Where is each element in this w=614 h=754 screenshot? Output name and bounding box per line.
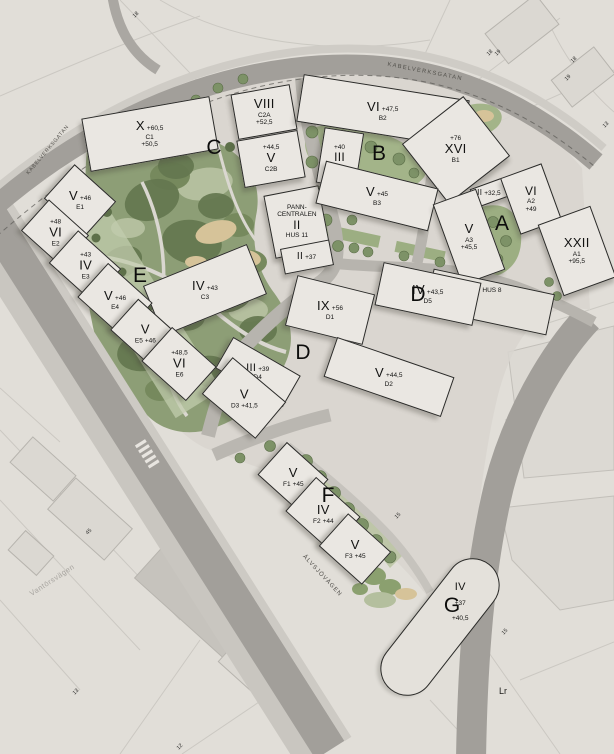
quarter-label-f: F bbox=[322, 484, 335, 508]
quarter-label-d-lower: D bbox=[295, 341, 310, 365]
building-b2-code: B2 bbox=[379, 115, 387, 122]
building-c2b-code: C2B bbox=[265, 166, 278, 173]
building-pann-annex-roman: II bbox=[297, 251, 303, 262]
building-a2-code: A2 bbox=[527, 198, 535, 205]
building-f3-roman: V bbox=[351, 538, 360, 553]
building-b2-height: +47,5 bbox=[382, 106, 398, 113]
building-d2-roman: V bbox=[375, 366, 384, 381]
building-c1-roman: X bbox=[136, 119, 145, 134]
quarter-label-d-upper: D bbox=[410, 283, 425, 307]
building-b3-height: +45 bbox=[377, 191, 388, 198]
building-b3-code: B3 bbox=[373, 200, 381, 207]
building-e1-height: +46 bbox=[80, 195, 91, 202]
building-e5-height: +46 bbox=[144, 337, 155, 344]
building-d1-code: D1 bbox=[326, 314, 334, 321]
building-e1-roman: V bbox=[69, 189, 78, 204]
building-f1-roman: V bbox=[289, 466, 298, 481]
building-c2a-height: +52,5 bbox=[256, 119, 272, 126]
building-e3-roman: IV bbox=[79, 259, 92, 274]
building-d3-code: D3 bbox=[231, 402, 239, 409]
building-e5-code: E5 bbox=[135, 337, 143, 344]
building-d1-height: +56 bbox=[332, 305, 343, 312]
building-a1-roman: XXII bbox=[564, 236, 590, 251]
quarter-label-a: A bbox=[495, 212, 509, 236]
building-d4-height: +39 bbox=[259, 366, 270, 373]
building-pann-code: HUS 11 bbox=[286, 232, 308, 239]
building-c1-note: +50,5 bbox=[142, 141, 158, 148]
building-d3-height: +41,5 bbox=[241, 402, 257, 409]
building-e4-height: +46 bbox=[115, 295, 126, 302]
building-d2-height: +44,5 bbox=[386, 372, 402, 379]
building-d1-roman: IX bbox=[317, 299, 330, 314]
building-c3-height: +43 bbox=[207, 285, 218, 292]
building-f1-height: +45 bbox=[292, 481, 303, 488]
building-a2-height: +49 bbox=[525, 206, 536, 213]
building-c2b-roman: V bbox=[266, 152, 275, 167]
building-a2-roman: VI bbox=[525, 185, 537, 198]
quarter-label-b: B bbox=[372, 142, 386, 166]
building-c1-height: +60,5 bbox=[147, 125, 163, 132]
building-f2-height: +44 bbox=[322, 518, 333, 525]
building-e6-roman: VI bbox=[173, 357, 186, 372]
building-pann-annex-height: +37 bbox=[306, 254, 317, 261]
building-d2-code: D2 bbox=[385, 381, 393, 388]
building-e2-roman: VI bbox=[49, 226, 62, 241]
building-e3-code: E3 bbox=[81, 273, 89, 280]
building-c3-roman: IV bbox=[192, 279, 205, 294]
building-pann-roman: II bbox=[293, 219, 300, 232]
building-d5-height: +43,5 bbox=[427, 289, 443, 296]
building-d3-roman: V bbox=[240, 387, 249, 402]
building-a1-height: +95,5 bbox=[569, 258, 585, 265]
building-hus8-code: HUS 8 bbox=[483, 287, 502, 294]
building-e4-roman: V bbox=[104, 289, 113, 304]
quarter-label-g: G bbox=[444, 594, 460, 618]
building-f1-code: F1 bbox=[283, 481, 291, 488]
building-b1-roman: XVI bbox=[445, 143, 467, 158]
street-label-lr-marker: Lr bbox=[499, 686, 507, 696]
building-e4-code: E4 bbox=[111, 304, 119, 311]
building-a3-height: +45,5 bbox=[461, 244, 477, 251]
quarter-label-e: E bbox=[133, 264, 147, 288]
building-c2a-roman: VIII bbox=[254, 97, 275, 112]
building-a3-roman: V bbox=[464, 222, 473, 237]
building-a4-height: +32,5 bbox=[484, 190, 500, 197]
building-g-roman: IV bbox=[455, 581, 466, 593]
building-f2-code: F2 bbox=[313, 518, 321, 525]
building-e1-code: E1 bbox=[76, 204, 84, 211]
building-b3-roman: V bbox=[366, 185, 375, 200]
building-e5-roman: V bbox=[141, 322, 150, 337]
building-f3-height: +45 bbox=[354, 553, 365, 560]
building-e6-code: E6 bbox=[175, 371, 183, 378]
site-plan: const data = JSON.parse(document.getElem… bbox=[0, 0, 614, 754]
building-b2-roman: VI bbox=[367, 100, 380, 115]
quarter-label-c: C bbox=[206, 136, 221, 160]
building-f3-code: F3 bbox=[345, 553, 353, 560]
building-e2-code: E2 bbox=[51, 240, 59, 247]
building-b1-code: B1 bbox=[452, 157, 460, 164]
building-pann-note: PANN-CENTRALEN bbox=[273, 204, 321, 219]
building-c3-code: C3 bbox=[201, 294, 209, 301]
